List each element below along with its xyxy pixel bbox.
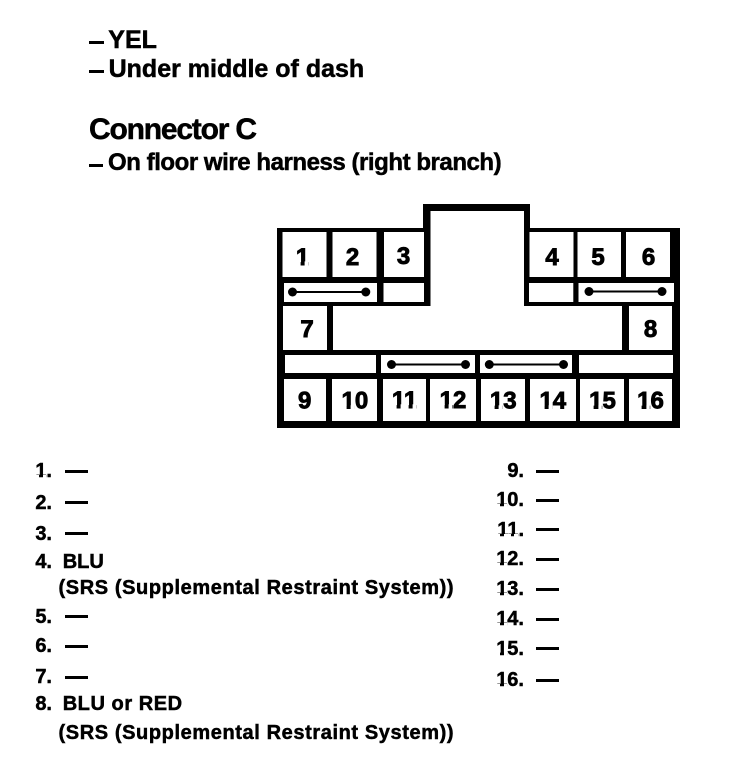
svg-text:9: 9 <box>298 388 311 415</box>
svg-text:3: 3 <box>397 243 410 270</box>
svg-text:13: 13 <box>490 388 517 415</box>
svg-text:7: 7 <box>300 316 313 343</box>
svg-text:14: 14 <box>539 388 566 415</box>
svg-text:2: 2 <box>346 244 359 271</box>
svg-text:8: 8 <box>644 316 657 343</box>
svg-text:15: 15 <box>589 388 616 415</box>
svg-text:1: 1 <box>296 244 309 271</box>
svg-text:5: 5 <box>591 244 604 271</box>
svg-text:16: 16 <box>637 388 664 415</box>
svg-text:6: 6 <box>642 244 655 271</box>
svg-text:4: 4 <box>545 244 559 271</box>
svg-text:10: 10 <box>342 388 369 415</box>
svg-text:12: 12 <box>440 387 467 414</box>
svg-text:11: 11 <box>392 387 417 414</box>
